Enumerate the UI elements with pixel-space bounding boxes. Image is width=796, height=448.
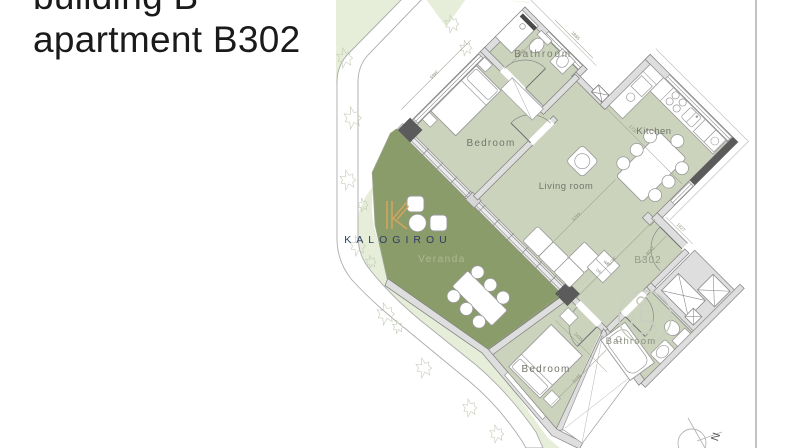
- svg-text:B302: B302: [634, 255, 661, 266]
- svg-text:Bedroom: Bedroom: [467, 138, 516, 149]
- svg-text:Living room: Living room: [539, 181, 594, 192]
- svg-text:Bedroom: Bedroom: [522, 364, 571, 375]
- svg-text:N: N: [709, 431, 723, 443]
- svg-text:Bathroom: Bathroom: [514, 49, 572, 60]
- svg-text:Bathroom: Bathroom: [606, 336, 657, 347]
- svg-text:Kitchen: Kitchen: [636, 126, 671, 137]
- svg-text:1865: 1865: [570, 30, 581, 41]
- svg-text:1927: 1927: [676, 222, 687, 233]
- svg-text:KALOGIROU: KALOGIROU: [344, 234, 451, 246]
- svg-text:Veranda: Veranda: [418, 254, 466, 265]
